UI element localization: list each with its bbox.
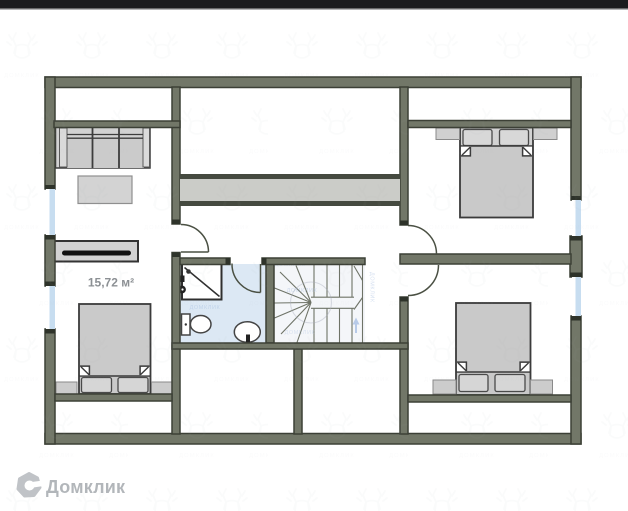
svg-text:Домклик: Домклик <box>46 477 126 497</box>
